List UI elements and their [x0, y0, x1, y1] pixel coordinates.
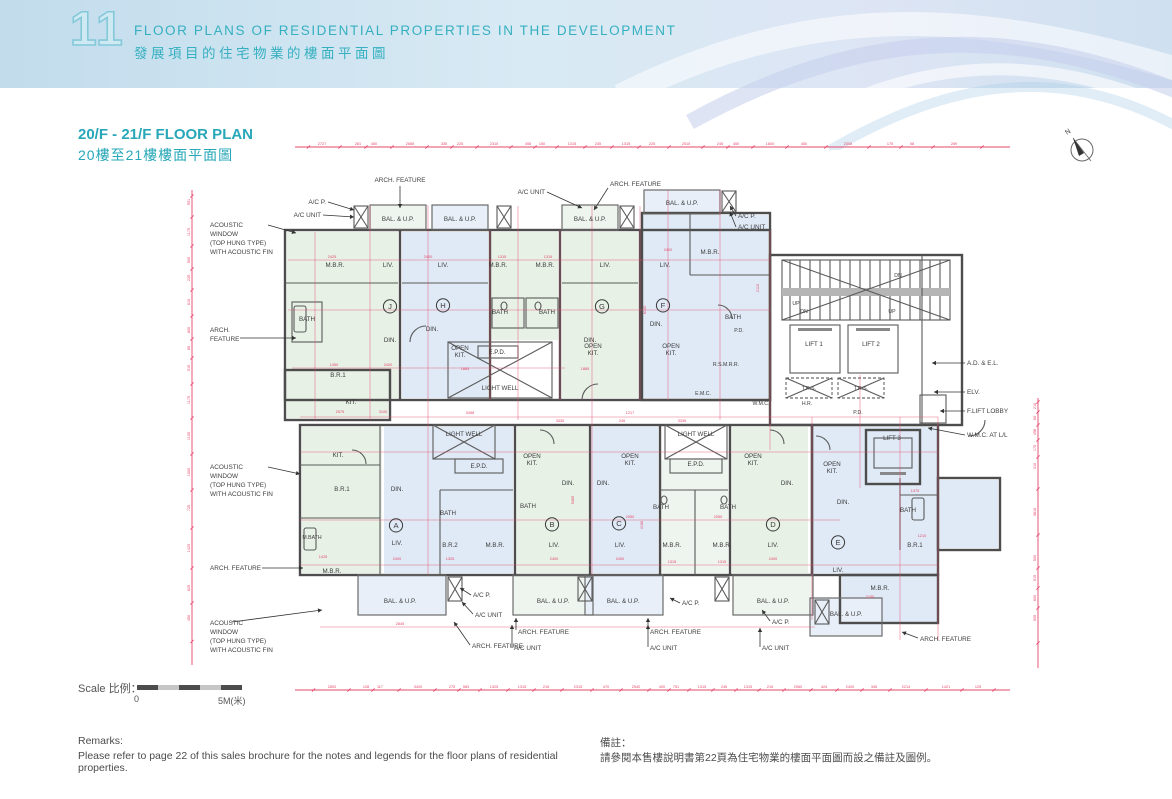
dim-label: 1315	[498, 255, 506, 259]
scale-max: 5M(米)	[218, 694, 246, 707]
scale-label: Scale 比例：	[78, 680, 142, 696]
dim-label: 245	[717, 142, 723, 146]
room-label: BATH	[720, 504, 736, 511]
room-label: B.R.1	[330, 372, 346, 379]
callout-label: A/C P.	[682, 600, 700, 607]
room-label: P.D.	[734, 328, 743, 334]
lift-lobby-nub	[920, 395, 946, 423]
dim-label: 281	[355, 142, 361, 146]
dim-label: 3816	[1033, 508, 1037, 516]
dim-label: 2400	[424, 255, 432, 259]
room-label: M.B.R.	[486, 542, 505, 549]
dim-label: 225	[457, 142, 463, 146]
dim-label: 725	[187, 505, 191, 511]
room-label: BAL. & U.P.	[666, 200, 698, 207]
dim-label: 4156	[640, 521, 644, 529]
callout-label: A/C P.	[473, 592, 491, 599]
dim-label: 2400	[664, 248, 672, 252]
dim-label: 117	[377, 685, 383, 689]
remarks-body-en: Please refer to page 22 of this sales br…	[78, 750, 578, 774]
dim-label: 210	[1033, 403, 1037, 409]
dim-label: 125	[975, 685, 981, 689]
svg-text:N: N	[1064, 128, 1072, 137]
room-label: M.B.R.	[701, 249, 720, 256]
room-label: LIV.	[660, 262, 671, 269]
dim-label: 1425	[319, 555, 327, 559]
room-label: B.R.2	[442, 542, 458, 549]
dim-label: 245	[619, 419, 625, 423]
lift-2-shaft	[848, 325, 898, 373]
dim-label: 470	[603, 685, 609, 689]
dim-label: 2050	[714, 515, 722, 519]
dim-label: 2540	[632, 685, 640, 689]
dim-label: 1800	[766, 142, 774, 146]
room-label: LIGHT WELL	[446, 431, 483, 438]
dim-label: 2315	[574, 685, 582, 689]
dim-label: 1315	[544, 255, 552, 259]
callout-label: A.D. & E.L.	[967, 360, 999, 367]
callout-arrowhead	[646, 618, 650, 622]
dim-label: 1885	[581, 367, 589, 371]
dim-label: 245	[721, 685, 727, 689]
dim-label: 1175	[187, 228, 191, 236]
dim-label: 2150	[866, 595, 874, 599]
brochure-page: 11 FLOOR PLANS OF RESIDENTIAL PROPERTIES…	[0, 0, 1172, 799]
dim-label: 2800	[328, 685, 336, 689]
callout-arrowhead	[932, 361, 936, 365]
dim-label: 2727	[318, 142, 326, 146]
dim-label: 1375	[911, 489, 919, 493]
dim-label: 455	[525, 142, 531, 146]
dim-label: 8140	[643, 306, 647, 314]
dim-label: 245	[595, 142, 601, 146]
dim-label: 1315	[518, 685, 526, 689]
dim-label: 2214	[902, 685, 910, 689]
room-label: BAL. & U.P.	[384, 598, 416, 605]
dim-label: 515	[187, 365, 191, 371]
callout-leader	[323, 215, 354, 217]
room-label: DIN.	[781, 480, 794, 487]
dim-label: 2315	[490, 142, 498, 146]
room-label: BAL. & U.P.	[607, 598, 639, 605]
room-label: M.B.R.	[489, 262, 508, 269]
room-label: BAL. & U.P.	[537, 598, 569, 605]
callout-arrowhead	[350, 215, 354, 219]
room-label: M.B.R.	[536, 262, 555, 269]
dim-label: 2400	[616, 557, 624, 561]
callout-label: ARCH. FEATURE	[610, 181, 661, 188]
unit-badge-letter: H	[440, 301, 445, 310]
dim-label: 625	[187, 585, 191, 591]
room-label: DIN.	[562, 480, 575, 487]
scale-bar	[137, 685, 242, 690]
callout-label: ELV.	[967, 389, 980, 396]
callout-label: A/C UNIT	[294, 212, 321, 219]
callout-label: ARCH.FEATURE	[210, 327, 239, 343]
dim-label: 1315	[668, 560, 676, 564]
callout-arrowhead	[934, 390, 938, 394]
dim-label: 400	[659, 685, 665, 689]
dim-label: 1315	[622, 142, 630, 146]
room-label: LIGHT WELL	[678, 431, 715, 438]
dim-label: 1217	[626, 411, 634, 415]
remarks-body-zh: 請參閱本售樓說明書第22頁為住宅物業的樓面平面圖而設之備註及圖例。	[600, 750, 1120, 765]
room-label: E.P.D.	[470, 463, 487, 470]
callout-arrowhead	[758, 628, 762, 632]
callout-arrowhead	[940, 409, 944, 413]
room-label: KIT.	[333, 452, 344, 459]
dim-label: 1315	[744, 685, 752, 689]
dim-label: 505	[1033, 615, 1037, 621]
room-label: E.M.C.	[695, 391, 711, 397]
dim-label: 65	[1033, 416, 1037, 420]
dim-label: 1175	[187, 396, 191, 404]
callout-label: W.M.C. AT L/L	[967, 432, 1008, 439]
room-label: LIV.	[615, 542, 626, 549]
room-label: BAL. & U.P.	[382, 216, 414, 223]
dim-label: 500	[1033, 555, 1037, 561]
dim-label: 225	[187, 275, 191, 281]
room-label: BAL. & U.P.	[830, 611, 862, 618]
room-label: E.P.D.	[687, 461, 704, 468]
room-label: H.R.	[802, 401, 812, 407]
dim-label: 85	[187, 346, 191, 350]
dim-label: 2400	[384, 363, 392, 367]
dim-label: 1000	[187, 468, 191, 476]
dim-label: 225	[649, 142, 655, 146]
room-label: LIV.	[833, 567, 844, 574]
room-label: B.R.1	[907, 542, 923, 549]
unit-badge-letter: D	[770, 520, 776, 529]
room-label: BAL. & U.P.	[444, 216, 476, 223]
dim-label: 2575	[336, 410, 344, 414]
dim-label: 175	[1033, 445, 1037, 451]
dim-label: 3458	[466, 411, 474, 415]
dim-label: 2050	[626, 515, 634, 519]
dim-label: 215	[767, 685, 773, 689]
dim-label: 1210	[918, 534, 926, 538]
dim-label: 2400	[846, 685, 854, 689]
dim-label: 1315	[568, 142, 576, 146]
lift-1-shaft	[790, 325, 840, 373]
room-label: P.D.	[853, 410, 862, 416]
dim-label: 1315	[718, 560, 726, 564]
room-label: BATH	[653, 504, 669, 511]
callout-label: A/C P.	[308, 199, 326, 206]
dim-label: 2845	[396, 622, 404, 626]
callout-label: ACOUSTICWINDOW(TOP HUNG TYPE)WITH ACOUST…	[210, 464, 273, 498]
callout-label: A/C UNIT	[514, 645, 541, 652]
page-title-zh: 發展項目的住宅物業的樓面平面圖	[134, 42, 389, 62]
room-label: B.R.1	[334, 486, 350, 493]
dim-label: 450	[733, 142, 739, 146]
dim-label: 2400	[769, 557, 777, 561]
dim-label: 450	[801, 142, 807, 146]
remarks-title-en: Remarks:	[78, 735, 123, 747]
dim-label: 2110	[756, 284, 760, 292]
page-title-en: FLOOR PLANS OF RESIDENTIAL PROPERTIES IN…	[134, 23, 676, 38]
dim-label: 800	[187, 327, 191, 333]
dim-label: 3335	[556, 419, 564, 423]
dim-label: 58	[910, 142, 914, 146]
room-label: LIGHT WELL	[482, 385, 519, 392]
dim-label: 2425	[328, 255, 336, 259]
scale-min: 0	[134, 694, 139, 704]
dim-label: 2400	[550, 557, 558, 561]
callout-label: A/C UNIT	[518, 189, 545, 196]
ac-box	[715, 577, 729, 601]
dim-label: 128	[363, 685, 369, 689]
floor-plan-svg: N 27272814502685335225231545515013152451…	[70, 120, 1170, 720]
dim-label: 3100	[379, 410, 387, 414]
room-label: BATH	[299, 316, 315, 323]
dim-label: 600	[1033, 595, 1037, 601]
callout-label: ARCH. FEATURE	[374, 177, 425, 184]
dim-label: 275	[449, 685, 455, 689]
callout-leader	[328, 202, 354, 210]
dim-label: 498	[1033, 429, 1037, 435]
dim-label: 1425	[187, 544, 191, 552]
callout-label: A/C UNIT	[762, 645, 789, 652]
ac-box	[448, 577, 462, 601]
compass-icon: N	[1064, 128, 1093, 161]
dim-label: 2685	[406, 142, 414, 146]
dim-label: 1325	[446, 557, 454, 561]
room-label: T.R.S.	[854, 386, 868, 392]
callout-label: A/C P.	[772, 619, 790, 626]
dim-label: 583	[463, 685, 469, 689]
room-label: M.B.R.	[326, 262, 345, 269]
callout-arrowhead	[514, 618, 518, 622]
dim-label: 1325	[490, 685, 498, 689]
dim-label: 269	[951, 142, 957, 146]
room-label: LIV.	[768, 542, 779, 549]
room-label: DN	[894, 273, 902, 279]
ac-box	[620, 206, 634, 228]
room-label: R.S.M.R.R.	[713, 362, 739, 368]
unit-badge-letter: J	[388, 302, 392, 311]
dim-label: 2060	[794, 685, 802, 689]
dim-label: 5365	[571, 496, 575, 504]
dim-label: 1450	[330, 363, 338, 367]
room-label: BATH	[900, 507, 916, 514]
room-label: DIN.	[426, 326, 439, 333]
callout-arrowhead	[454, 622, 458, 627]
room-label: E.P.D.	[488, 349, 505, 356]
dim-label: 2308	[844, 142, 852, 146]
dim-label: 335	[441, 142, 447, 146]
callout-label: ACOUSTICWINDOW(TOP HUNG TYPE)WITH ACOUST…	[210, 222, 273, 256]
room-label: M.B.R.	[871, 585, 890, 592]
callout-label: F.LIFT LOBBY	[967, 408, 1009, 415]
dim-label: 150	[539, 142, 545, 146]
ac-box	[722, 191, 736, 212]
room-label: M.BATH	[302, 535, 321, 541]
ac-box	[497, 206, 511, 228]
callout-leader	[268, 467, 300, 474]
unit-badge-letter: C	[616, 519, 622, 528]
room-label: BAL. & U.P.	[574, 216, 606, 223]
dim-label: 1315	[698, 685, 706, 689]
room-label: DIN.	[837, 499, 850, 506]
callout-label: ARCH. FEATURE	[210, 565, 261, 572]
callout-label: ARCH. FEATURE	[650, 629, 701, 636]
room-label: BATH	[492, 309, 508, 316]
dim-label: 1105	[187, 432, 191, 440]
ac-box	[354, 206, 368, 228]
room-label: BAL. & U.P.	[757, 598, 789, 605]
dim-label: 2400	[393, 557, 401, 561]
room-label: DIN.	[384, 337, 397, 344]
room-label: LIV.	[392, 540, 403, 547]
dim-label: 310	[1033, 463, 1037, 469]
dim-label: 345	[871, 685, 877, 689]
room-label: LIFT 3	[883, 435, 901, 442]
room-label: KIT.	[346, 399, 357, 406]
remarks-title-zh: 備註：	[600, 735, 632, 750]
dim-label: 3335	[678, 419, 686, 423]
callout-leader	[454, 622, 470, 645]
dim-label: 751	[673, 685, 679, 689]
room-label: W.M.C.	[752, 401, 769, 407]
room-label: DN	[800, 309, 808, 315]
room-label: M.B.R.	[713, 542, 732, 549]
room-label: BATH	[539, 309, 555, 316]
callout-label: ACOUSTICWINDOW(TOP HUNG TYPE)WITH ACOUST…	[210, 620, 273, 654]
dim-label: 450	[187, 615, 191, 621]
callout-label: A/C UNIT	[475, 612, 502, 619]
room-label: LIV.	[600, 262, 611, 269]
callout-label: ARCH. FEATURE	[920, 636, 971, 643]
callout-label: A/C P.	[738, 213, 756, 220]
dim-label: 591	[187, 199, 191, 205]
dim-label: 500	[187, 257, 191, 263]
room-label: UP	[888, 309, 896, 315]
room-label: T.R.S.	[802, 386, 816, 392]
dim-label: 610	[187, 299, 191, 305]
dim-label: 515	[1033, 575, 1037, 581]
dim-label: 2515	[682, 142, 690, 146]
unit-badge-letter: B	[549, 520, 554, 529]
room-label: M.B.R.	[663, 542, 682, 549]
callout-arrowhead	[350, 207, 354, 211]
dim-label: 1885	[461, 367, 469, 371]
dim-label: 175	[887, 142, 893, 146]
dim-label: 450	[371, 142, 377, 146]
callout-label: ARCH. FEATURE	[518, 629, 569, 636]
room-label: LIV.	[549, 542, 560, 549]
callout-leader	[232, 610, 322, 622]
room-label: DIN.	[597, 480, 610, 487]
room-label: M.B.R.	[323, 568, 342, 575]
room-label: BATH	[440, 510, 456, 517]
callout-label: A/C UNIT	[738, 224, 765, 231]
dim-label: 215	[543, 685, 549, 689]
room-label: DIN.	[391, 486, 404, 493]
unit-badge-letter: E	[835, 538, 840, 547]
callout-label: A/C UNIT	[650, 645, 677, 652]
room-label: BATH	[725, 314, 741, 321]
room-label: DIN.	[650, 321, 663, 328]
room-label: LIFT 2	[862, 341, 880, 348]
floor-plan: N 27272814502685335225231545515013152451…	[70, 120, 1170, 720]
dim-label: 3400	[414, 685, 422, 689]
dim-label: 424	[821, 685, 827, 689]
room-label: LIV.	[438, 262, 449, 269]
section-number: 11	[70, 6, 125, 54]
room-label: BATH	[520, 503, 536, 510]
unit-badge-letter: F	[661, 301, 666, 310]
dim-label: 1421	[942, 685, 950, 689]
room-label: LIFT 1	[805, 341, 823, 348]
callout-arrowhead	[318, 608, 322, 612]
unit-badge-letter: G	[599, 302, 605, 311]
room-label: UP	[792, 301, 800, 307]
room-label: LIV.	[383, 262, 394, 269]
